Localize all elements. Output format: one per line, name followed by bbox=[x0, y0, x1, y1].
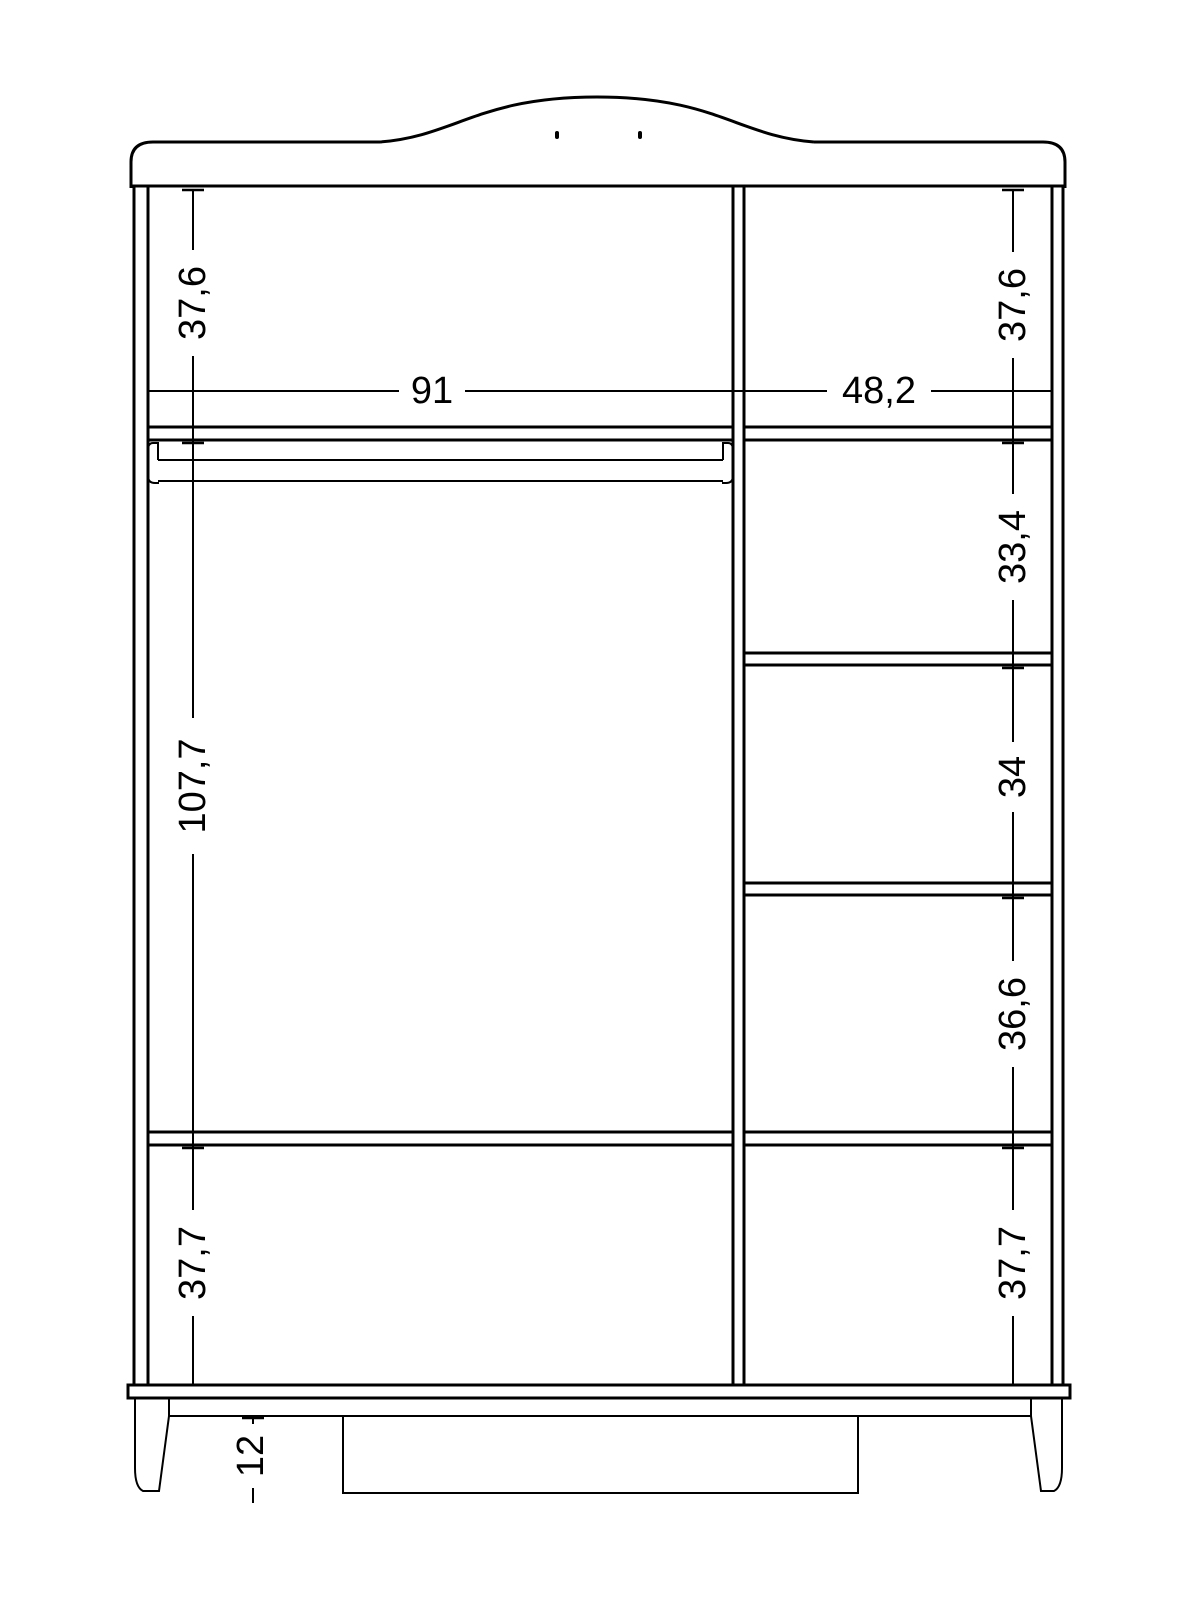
dim-label-left-section-width: 91 bbox=[411, 370, 453, 412]
top-panel-right-corner bbox=[814, 142, 1065, 188]
dim-label-right-compartment-2: 34 bbox=[992, 756, 1034, 798]
rod-bracket-left bbox=[148, 443, 159, 483]
bottom-deck-panel bbox=[128, 1385, 1070, 1398]
right-leg bbox=[1031, 1398, 1062, 1491]
dim-label-right-compartment-1: 33,4 bbox=[992, 510, 1034, 584]
wardrobe-technical-drawing: 37,6 107,7 37,7 37,6 33,4 34 36,6 37,7 1… bbox=[0, 0, 1200, 1600]
dim-label-left-hanging-height: 107,7 bbox=[172, 738, 214, 833]
dim-label-right-section-width: 48,2 bbox=[842, 370, 916, 412]
dim-label-right-lower-height: 37,7 bbox=[992, 1226, 1034, 1300]
dim-label-right-compartment-3: 36,6 bbox=[992, 977, 1034, 1051]
dimension-drawing-canvas: 37,6 107,7 37,7 37,6 33,4 34 36,6 37,7 1… bbox=[0, 0, 1200, 1600]
dim-label-left-lower-height: 37,7 bbox=[172, 1226, 214, 1300]
left-leg bbox=[135, 1398, 169, 1491]
dim-label-right-upper-height: 37,6 bbox=[992, 268, 1034, 342]
dim-label-leg-height: 12 bbox=[230, 1435, 272, 1477]
rod-bracket-right bbox=[722, 443, 733, 483]
top-panel-left-corner bbox=[131, 142, 380, 188]
plinth-recessed-panel bbox=[343, 1416, 858, 1493]
crown-curve bbox=[380, 97, 814, 142]
crown-peg-dot-left bbox=[555, 131, 559, 139]
dim-label-left-upper-height: 37,6 bbox=[172, 266, 214, 340]
crown-peg-dot-right bbox=[638, 131, 642, 139]
